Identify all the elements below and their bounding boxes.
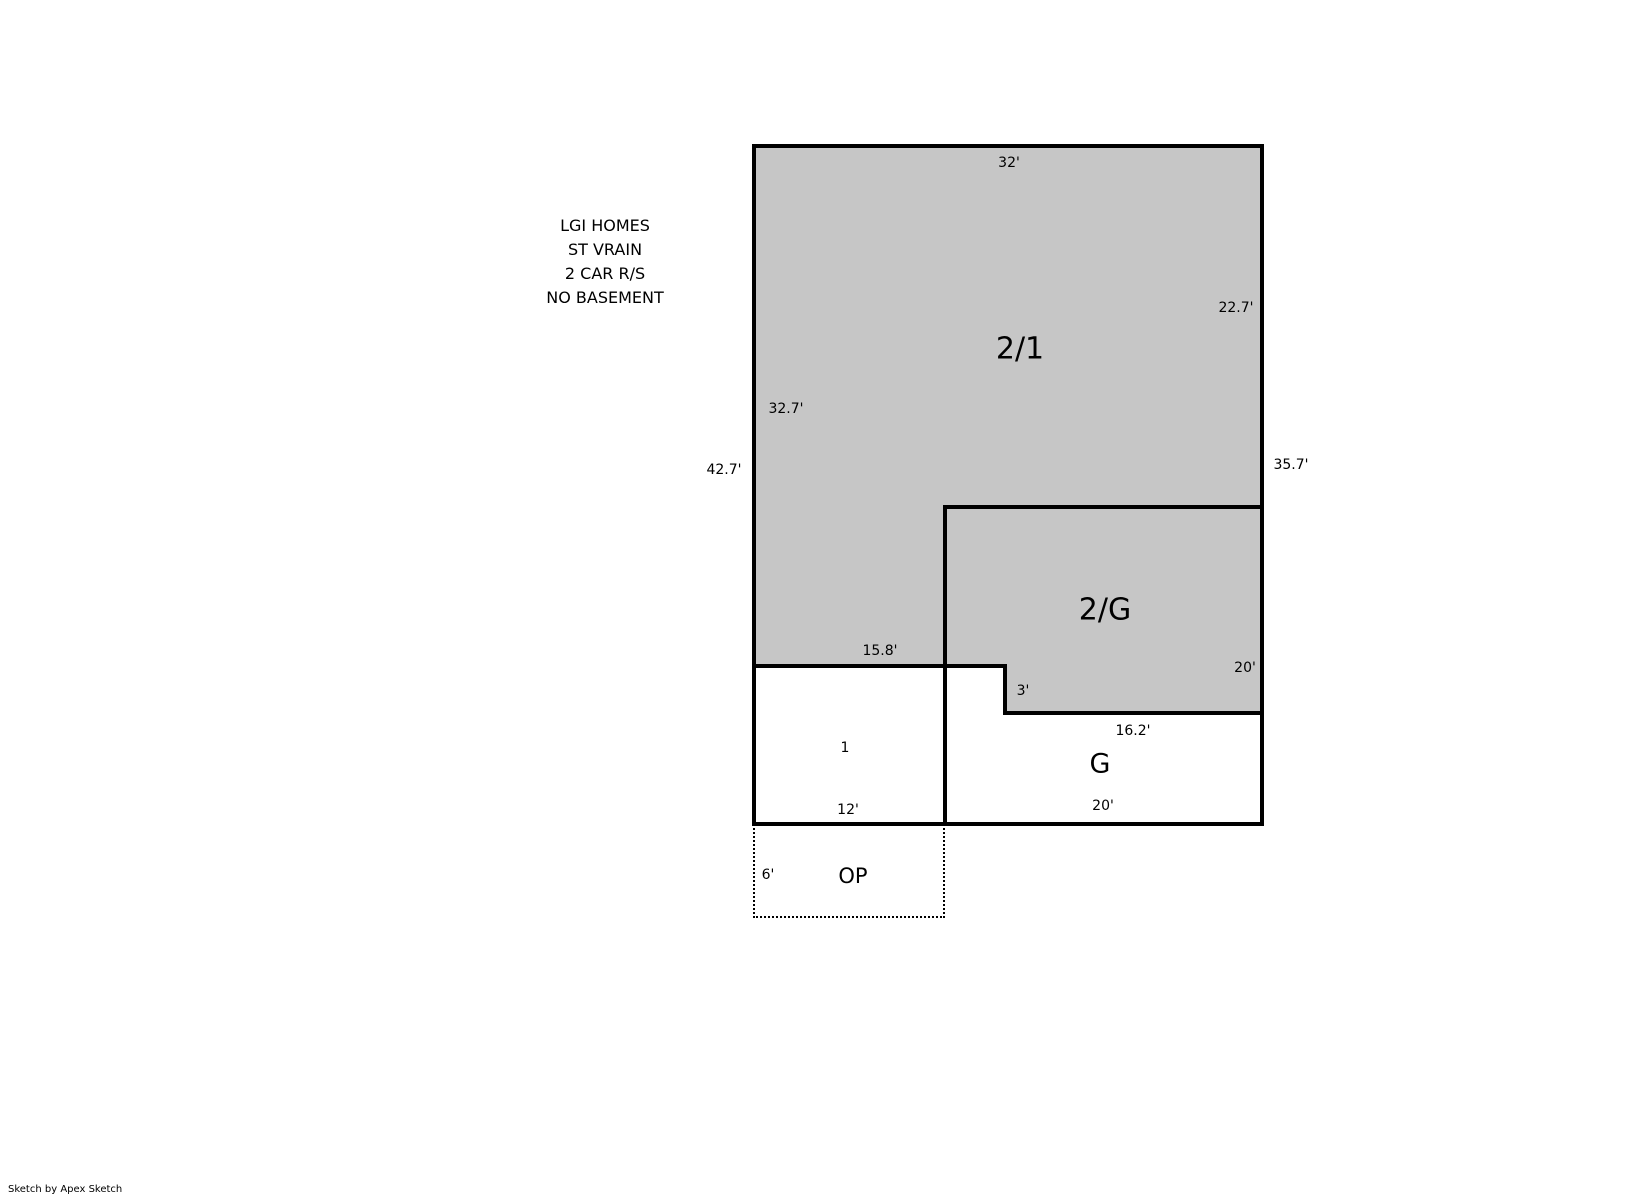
dim-label-garage-top: 16.2' [1115, 723, 1150, 739]
wall-garage-top [1003, 711, 1264, 715]
dim-label-left-total: 42.7' [706, 462, 741, 478]
plan-note-line: NO BASEMENT [455, 286, 755, 310]
apex-credit: Sketch by Apex Sketch [8, 1184, 122, 1195]
dim-label-first-floor-bottom: 12' [837, 802, 859, 818]
area-label-upper: 2/1 [996, 332, 1044, 367]
wall-notch-vertical [1003, 664, 1007, 715]
upper-floor-fill [754, 146, 1262, 666]
wall-left [752, 144, 756, 826]
upper-over-garage-fill [1005, 666, 1262, 713]
wall-upper-garage-top [943, 505, 1264, 509]
dim-label-garage-right: 20' [1234, 660, 1256, 676]
area-label-upper-over-garage: 2/G [1079, 593, 1131, 628]
dim-label-garage-bottom: 20' [1092, 798, 1114, 814]
dim-label-left-upper: 32.7' [768, 401, 803, 417]
dim-label-porch-left: 6' [762, 867, 775, 883]
dim-label-interior-left: 15.8' [862, 643, 897, 659]
area-label-first-floor: 1 [841, 740, 850, 756]
wall-interior-left [752, 664, 1007, 668]
wall-top [752, 144, 1264, 148]
area-label-open-porch: OP [838, 864, 867, 888]
area-label-garage: G [1090, 749, 1111, 780]
floorplan-canvas: LGI HOMES ST VRAIN 2 CAR R/S NO BASEMENT… [0, 0, 1632, 1197]
wall-right [1260, 144, 1264, 826]
plan-note-line: ST VRAIN [455, 238, 755, 262]
plan-note-line: LGI HOMES [455, 214, 755, 238]
wall-bottom [752, 822, 1264, 826]
dim-label-right-upper: 22.7' [1218, 300, 1253, 316]
plan-notes: LGI HOMES ST VRAIN 2 CAR R/S NO BASEMENT [455, 214, 755, 310]
dim-label-notch: 3' [1017, 683, 1030, 699]
plan-note-line: 2 CAR R/S [455, 262, 755, 286]
dim-label-right-total: 35.7' [1273, 457, 1308, 473]
dim-label-top-width: 32' [998, 155, 1020, 171]
wall-divider-vertical [943, 505, 947, 826]
